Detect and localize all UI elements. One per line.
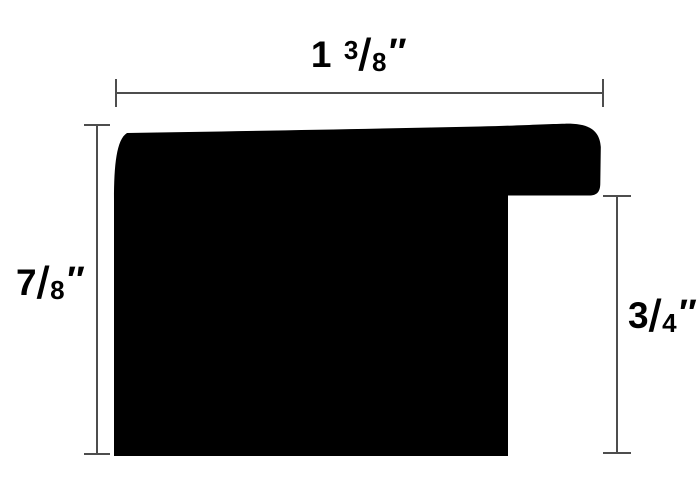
top-dimension-whole: 1 xyxy=(311,36,332,73)
top-dimension-label: 1 3 / 8 ″ xyxy=(311,36,407,75)
top-dimension-unit: ″ xyxy=(389,33,407,70)
top-dimension-slash: / xyxy=(357,33,372,78)
left-dimension-numerator: 7 xyxy=(16,264,37,301)
left-dimension-slash: / xyxy=(36,261,51,306)
left-dimension-label: 7 / 8 ″ xyxy=(16,264,85,303)
left-dimension-denominator: 8 xyxy=(50,277,65,303)
moulding-profile-silhouette xyxy=(114,124,601,456)
right-dimension-numerator: 3 xyxy=(628,297,649,334)
moulding-profile-diagram: 1 3 / 8 ″ 7 / 8 ″ 3 / 4 ″ xyxy=(0,0,700,500)
top-dimension-line xyxy=(116,79,603,107)
top-dimension-numerator: 3 xyxy=(344,37,359,63)
left-dimension-line xyxy=(84,125,110,454)
right-dimension-unit: ″ xyxy=(679,294,697,331)
diagram-canvas xyxy=(0,0,700,500)
right-dimension-slash: / xyxy=(648,294,663,339)
right-dimension-label: 3 / 4 ″ xyxy=(628,297,697,336)
left-dimension-unit: ″ xyxy=(67,261,85,298)
right-dimension-denominator: 4 xyxy=(662,310,677,336)
top-dimension-denominator: 8 xyxy=(372,49,387,75)
right-dimension-line xyxy=(603,196,631,453)
